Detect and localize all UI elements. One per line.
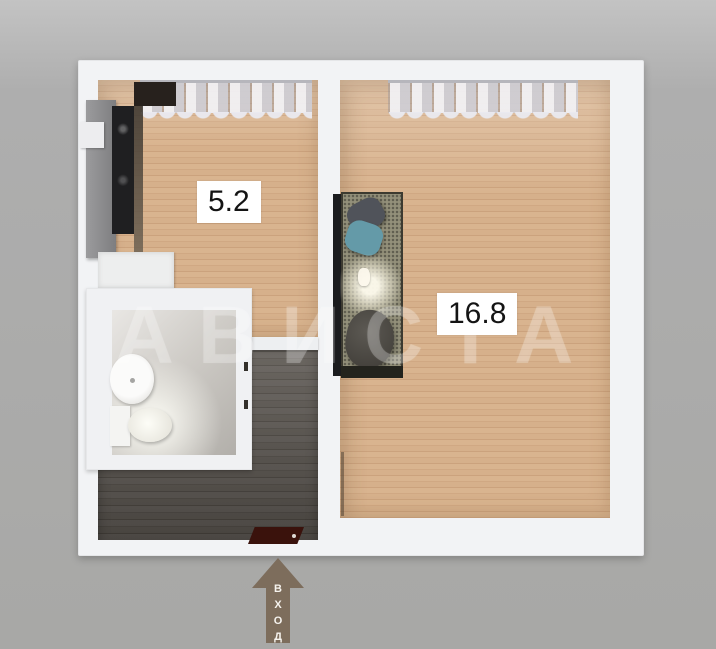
- room-label-living-room: 16.8: [437, 293, 517, 335]
- apartment-outline: [78, 60, 644, 556]
- entrance-label: ВХОД: [272, 583, 284, 647]
- kitchen-appliances: [112, 106, 134, 234]
- bathroom-door-frame-bottom: [244, 400, 248, 409]
- sink-icon: [110, 354, 154, 404]
- toilet-tank: [110, 406, 130, 446]
- toilet-icon: [128, 408, 172, 442]
- floor-plan-scene: 5.2 16.8 АВИСТА ВХОД: [0, 0, 716, 649]
- entrance-door-mat: [248, 527, 304, 544]
- rug-dark-band: [341, 366, 403, 378]
- kitchen-counter-edge: [134, 84, 143, 256]
- floor-lamp: [358, 268, 370, 286]
- entrance-arrow-shaft: ВХОД: [266, 587, 290, 643]
- room-label-kitchen: 5.2: [197, 181, 261, 223]
- kitchen-lower-cabinet: [98, 252, 174, 288]
- living-room-door-frame: [341, 452, 344, 516]
- bathroom-door-frame-top: [244, 362, 248, 371]
- kitchen-corner-cabinet: [134, 82, 176, 106]
- kitchen-shelf: [80, 122, 104, 148]
- entrance-arrow: ВХОД: [251, 558, 305, 644]
- bathroom: [86, 288, 252, 470]
- living-window-curtain-icon: [388, 80, 578, 113]
